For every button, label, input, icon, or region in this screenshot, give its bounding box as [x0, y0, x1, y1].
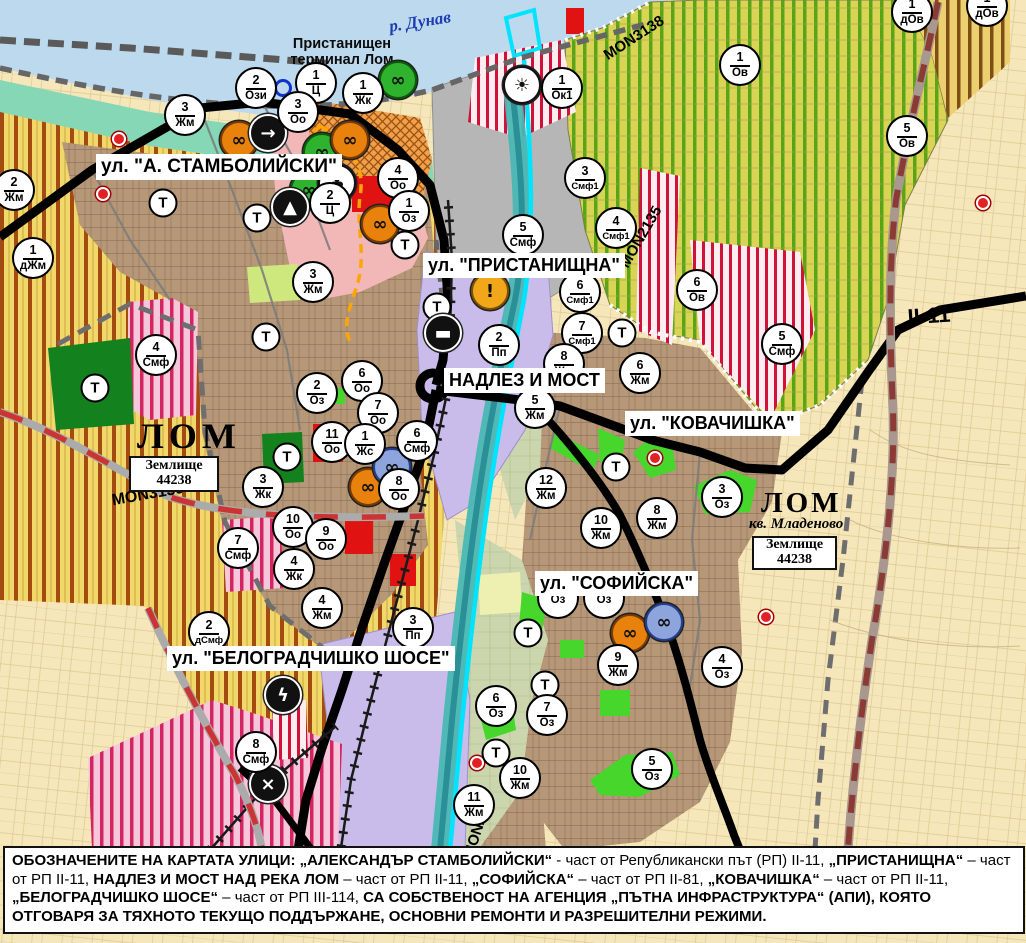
transport-marker: Т	[602, 453, 631, 482]
zone-marker: 4Жм	[301, 587, 343, 629]
zone-marker: 9Жм	[597, 644, 639, 686]
note-segment: „БЕЛОГРАДЧИШКО ШОСЕ“	[12, 889, 218, 906]
zone-marker: 11Жм	[453, 784, 495, 826]
zone-marker: 5Ов	[886, 115, 928, 157]
map-overlay: р. Дунав Пристанищен терминал Лом ЛОМ ЛО…	[0, 0, 1026, 943]
zone-marker: 10Жм	[580, 507, 622, 549]
zone-marker: 5Смф	[761, 323, 803, 365]
poi-dot	[648, 451, 662, 465]
note-segment: – част от РП II-11,	[339, 871, 472, 888]
zoning-map: р. Дунав Пристанищен терминал Лом ЛОМ ЛО…	[0, 0, 1026, 943]
zone-marker: 2Ози	[235, 67, 277, 109]
land-area-box-left: Землище 44238	[129, 456, 219, 492]
zone-marker: 1Жк	[342, 72, 384, 114]
city-label-lom: ЛОМ	[137, 415, 241, 457]
street-label-nadlez-i-most: НАДЛЕЗ И МОСТ	[444, 368, 605, 393]
zone-marker: 1дОв	[966, 0, 1008, 27]
zone-marker: 4Смф	[135, 334, 177, 376]
zone-marker: 3Жм	[292, 261, 334, 303]
zone-marker: 3Оо	[277, 91, 319, 133]
transport-marker: Т	[514, 619, 543, 648]
truck-icon: ▬	[424, 314, 462, 352]
zone-marker: 8Смф	[235, 731, 277, 773]
tunnel-icon: ▲	[271, 188, 309, 226]
zone-marker: 1Ов	[719, 44, 761, 86]
street-label-pristanishtna: ул. "ПРИСТАНИЩНА"	[423, 253, 625, 278]
zone-marker: 3Жк	[242, 466, 284, 508]
zone-marker: 6Оз	[475, 685, 517, 727]
zone-marker: 2Жм	[0, 169, 35, 211]
transport-marker: Т	[149, 189, 178, 218]
zone-marker: 7Оз	[526, 694, 568, 736]
land-area-line1: Землище	[145, 459, 202, 474]
transport-marker: Т	[273, 443, 302, 472]
transport-marker: Т	[252, 323, 281, 352]
poi-dot	[96, 187, 110, 201]
transport-marker: Т	[608, 319, 637, 348]
zone-marker: 5Жм	[514, 387, 556, 429]
zone-marker: 2Ц	[309, 182, 351, 224]
transport-marker: Т	[81, 374, 110, 403]
zone-marker: 12Жм	[525, 467, 567, 509]
note-segment: - част от Републикански път (РП) II-11,	[552, 852, 828, 869]
bolt-icon: ϟ	[264, 676, 302, 714]
zone-marker: 3Пп	[392, 607, 434, 649]
land-area-line2: 44238	[157, 474, 192, 489]
zone-marker: 1дОв	[891, 0, 933, 33]
poi-dot	[976, 196, 990, 210]
zone-marker: 1дЖм	[12, 237, 54, 279]
note-segment: НАДЛЕЗ И МОСТ НАД РЕКА ЛОМ	[93, 871, 339, 888]
street-label-stamboliyski: ул. "А. СТАМБОЛИЙСКИ"	[96, 154, 342, 180]
note-segment: „КОВАЧИШКА“	[708, 871, 820, 888]
zone-marker: 8Жм	[636, 497, 678, 539]
district-label-mladenovo: кв. Младеново	[749, 516, 843, 533]
zone-marker: 6Ов	[676, 269, 718, 311]
monument-blue-icon: ∞	[645, 603, 683, 641]
monument-green-icon: ∞	[379, 61, 417, 99]
zone-marker: 3Жм	[164, 94, 206, 136]
note-segment: „СОФИЙСКА“	[472, 871, 574, 888]
zone-marker: 10Жм	[499, 757, 541, 799]
excl-icon: !	[471, 272, 509, 310]
zone-marker: 4Смф1	[595, 207, 637, 249]
road-label-mon3138: MON3138	[601, 12, 668, 63]
zone-marker: 8Оо	[378, 468, 420, 510]
land-area-line1: Землище	[766, 538, 823, 553]
zone-marker: 2Пп	[478, 324, 520, 366]
poi-dot	[759, 610, 773, 624]
street-label-kovachishka: ул. "КОВАЧИШКА"	[625, 411, 800, 436]
zone-marker: 6Жм	[619, 352, 661, 394]
zone-marker: 7Смф	[217, 527, 259, 569]
sun-icon: ☀	[503, 66, 541, 104]
transport-marker: Т	[243, 204, 272, 233]
zone-marker: 4Оз	[701, 646, 743, 688]
zone-marker: 4Жк	[273, 548, 315, 590]
note-segment: „ПРИСТАНИЩНА“	[829, 852, 964, 869]
poi-dot	[112, 132, 126, 146]
note-segment: – част от РП II-11,	[820, 871, 948, 888]
note-segment: – част от РП II-81,	[574, 871, 708, 888]
road-label-ii-11: II-11	[907, 302, 952, 331]
street-label-belogradchishko: ул. "БЕЛОГРАДЧИШКО ШОСЕ"	[167, 646, 455, 671]
note-segment: – част от РП III-114,	[218, 889, 363, 906]
land-area-box-right: Землище 44238	[752, 536, 837, 570]
zone-marker: 5Оз	[631, 748, 673, 790]
river-danube-label: р. Дунав	[388, 7, 452, 36]
zone-marker: 1Ок1	[541, 67, 583, 109]
zone-marker: 5Смф	[502, 214, 544, 256]
zone-marker: 1Жс	[344, 423, 386, 465]
zone-marker: 1Оз	[388, 190, 430, 232]
legend-note: ОБОЗНАЧЕНИТЕ НА КАРТАТА УЛИЦИ: „АЛЕКСАНД…	[3, 846, 1025, 934]
zone-marker: 2Оз	[296, 372, 338, 414]
street-label-sofiyska: ул. "СОФИЙСКА"	[535, 571, 698, 596]
zone-marker: 3Смф1	[564, 157, 606, 199]
zone-marker: 9Оо	[305, 518, 347, 560]
zone-marker: 6Смф	[396, 420, 438, 462]
note-segment: ОБОЗНАЧЕНИТЕ НА КАРТАТА УЛИЦИ: „АЛЕКСАНД…	[12, 852, 552, 869]
land-area-line2: 44238	[777, 553, 812, 568]
zone-marker: 3Оз	[701, 476, 743, 518]
